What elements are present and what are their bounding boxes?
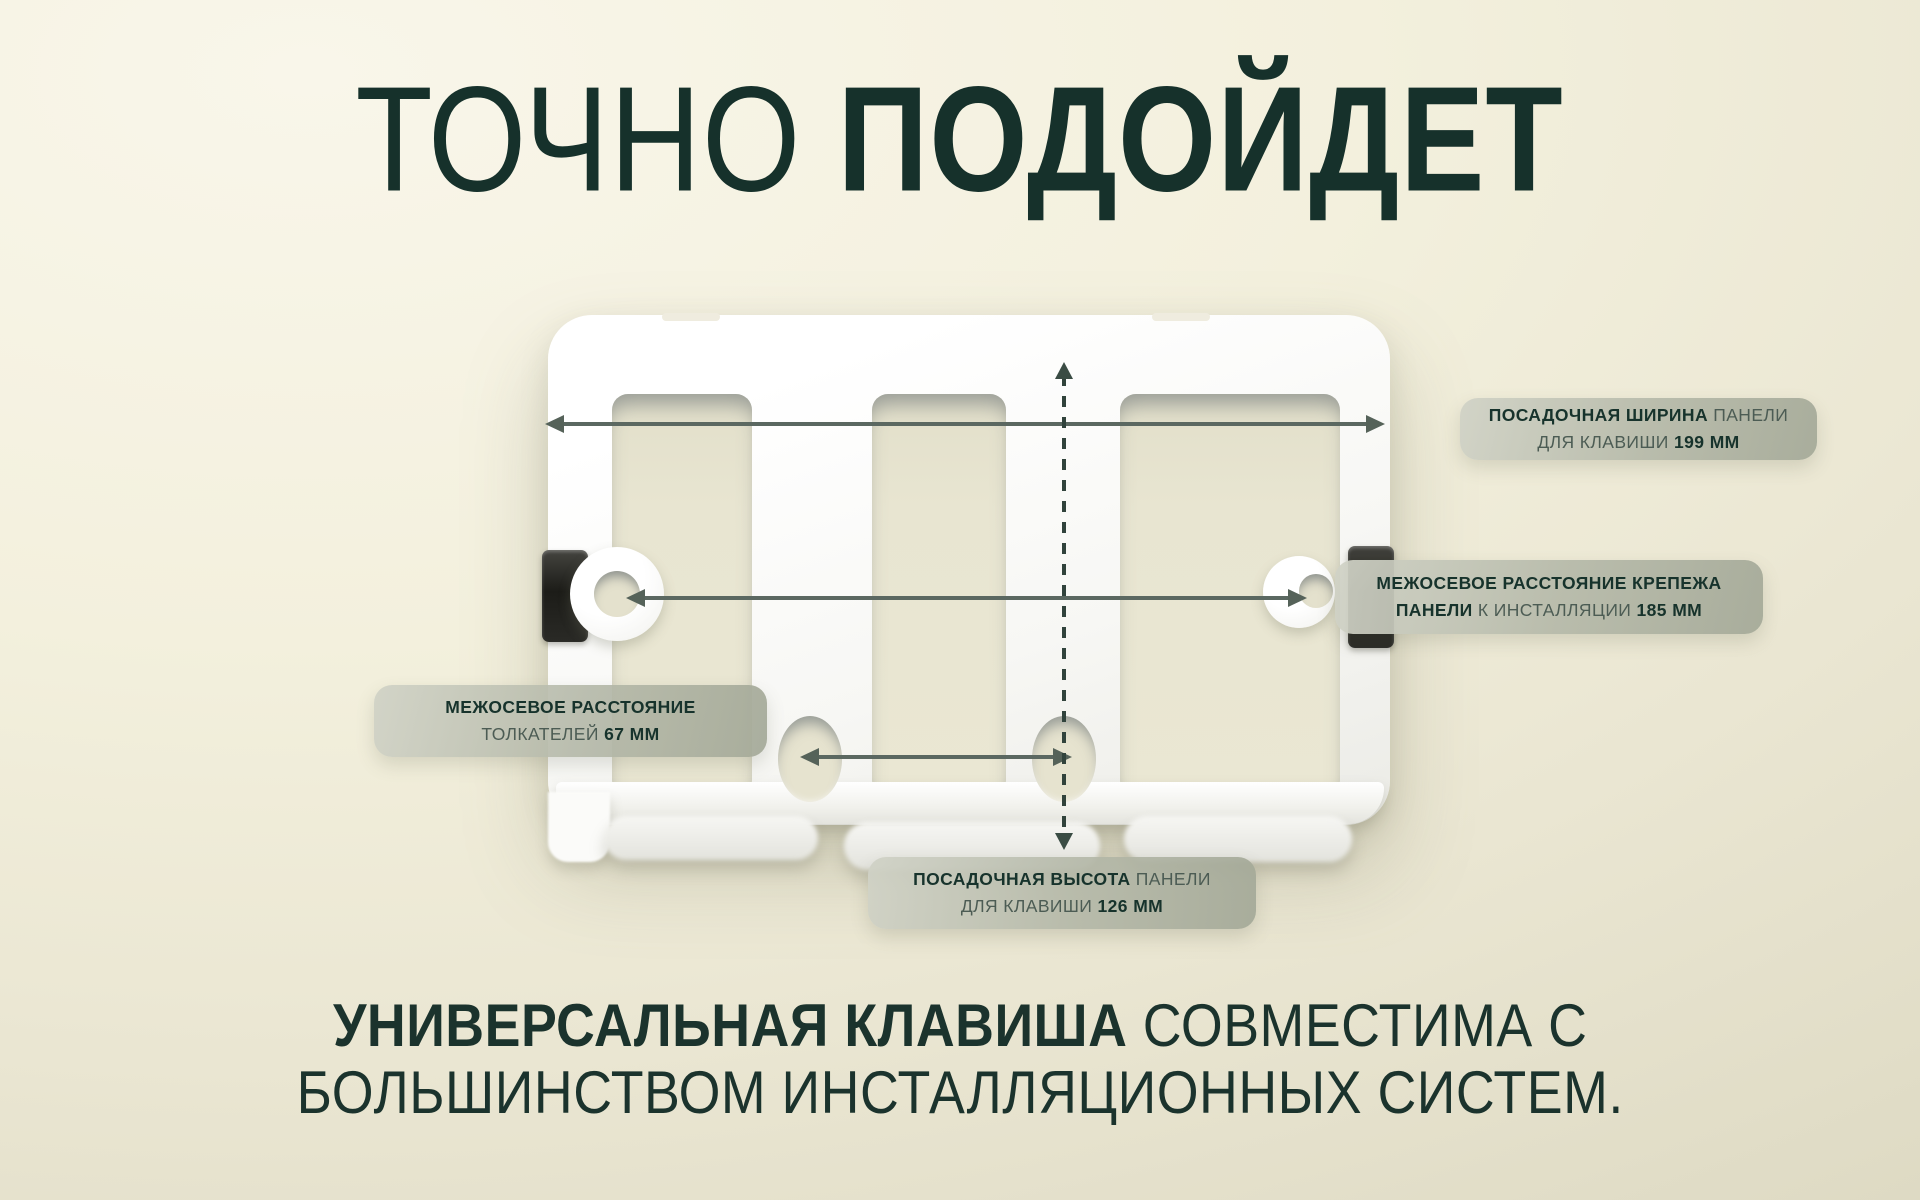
callout-seat-height-line1-reg: ПАНЕЛИ <box>1131 869 1211 889</box>
callout-seat-height: ПОСАДОЧНАЯ ВЫСОТА ПАНЕЛИ ДЛЯ КЛАВИШИ 126… <box>868 857 1256 929</box>
footer-tagline: УНИВЕРСАЛЬНАЯ КЛАВИША СОВМЕСТИМА С БОЛЬШ… <box>0 992 1920 1116</box>
callout-seat-height-line2-reg: ДЛЯ КЛАВИШИ <box>961 896 1098 916</box>
width-arrow-line <box>559 422 1371 426</box>
height-arrowhead-bottom-icon <box>1055 833 1073 850</box>
fixing-arrowhead-right-icon <box>1288 589 1307 607</box>
footer-line1-reg: СОВМЕСТИМА С <box>1127 991 1587 1059</box>
fixing-arrow-line <box>640 596 1293 600</box>
callout-seat-width-term: ПОСАДОЧНАЯ ШИРИНА <box>1489 405 1708 425</box>
height-dimension-arrow-dashed <box>1054 362 1074 850</box>
frame-left-foot <box>548 792 610 862</box>
callout-fixing-line2-reg: К ИНСТАЛЛЯЦИИ <box>1473 600 1637 620</box>
footer-line2: БОЛЬШИНСТВОМ ИНСТАЛЛЯЦИОННЫХ СИСТЕМ. <box>296 1059 1623 1126</box>
pushers-dimension-arrow <box>800 748 1072 766</box>
pushers-arrow-line <box>814 755 1058 759</box>
frame-bottom-clip-right <box>1124 816 1352 862</box>
callout-seat-width-line2-reg: ДЛЯ КЛАВИШИ <box>1537 432 1674 452</box>
page-title-bold-part <box>802 55 838 222</box>
callout-fixing-distance: МЕЖОСЕВОЕ РАССТОЯНИЕ КРЕПЕЖА ПАНЕЛИ К ИН… <box>1335 560 1763 634</box>
page-title: ТОЧНО ПОДОЙДЕТ <box>0 64 1920 200</box>
frame-bottom-clip-left <box>604 816 818 860</box>
callout-pushers-distance: МЕЖОСЕВОЕ РАССТОЯНИЕ ТОЛКАТЕЛЕЙ 67 ММ <box>374 685 767 757</box>
callout-fixing-term2: ПАНЕЛИ <box>1396 600 1473 620</box>
infographic-canvas: ТОЧНО ПОДОЙДЕТ ПОСАДОЧНАЯ ШИРИНА ПАНЕ <box>0 0 1920 1200</box>
callout-seat-height-line2: ДЛЯ КЛАВИШИ 126 ММ <box>868 893 1256 920</box>
footer-line1-bold: УНИВЕРСАЛЬНАЯ КЛАВИША <box>333 991 1127 1059</box>
page-title-text: ТОЧНО ПОДОЙДЕТ <box>356 64 1564 214</box>
width-dimension-arrow <box>545 415 1385 433</box>
callout-fixing-value: 185 ММ <box>1637 600 1703 620</box>
callout-seat-width-value: 199 ММ <box>1674 432 1740 452</box>
callout-seat-width-line1: ПОСАДОЧНАЯ ШИРИНА ПАНЕЛИ <box>1460 402 1817 429</box>
width-arrowhead-left-icon <box>545 415 564 433</box>
callout-seat-height-line1: ПОСАДОЧНАЯ ВЫСОТА ПАНЕЛИ <box>868 866 1256 893</box>
callout-seat-width-line2: ДЛЯ КЛАВИШИ 199 ММ <box>1460 429 1817 456</box>
callout-fixing-line1: МЕЖОСЕВОЕ РАССТОЯНИЕ КРЕПЕЖА <box>1335 570 1763 597</box>
callout-fixing-term: МЕЖОСЕВОЕ РАССТОЯНИЕ КРЕПЕЖА <box>1376 573 1721 593</box>
pushers-arrowhead-left-icon <box>800 748 819 766</box>
height-arrowhead-top-icon <box>1055 362 1073 379</box>
width-arrowhead-right-icon <box>1366 415 1385 433</box>
height-arrow-dashed-line <box>1062 375 1066 837</box>
footer-tagline-text: УНИВЕРСАЛЬНАЯ КЛАВИША СОВМЕСТИМА С БОЛЬШ… <box>296 992 1623 1126</box>
callout-seat-width: ПОСАДОЧНАЯ ШИРИНА ПАНЕЛИ ДЛЯ КЛАВИШИ 199… <box>1460 398 1817 460</box>
frame-top-notch-right <box>1152 313 1210 321</box>
page-title-bold-word: ПОДОЙДЕТ <box>838 55 1564 222</box>
callout-pushers-line2: ТОЛКАТЕЛЕЙ 67 ММ <box>374 721 767 748</box>
callout-pushers-line2-reg: ТОЛКАТЕЛЕЙ <box>481 724 604 744</box>
callout-seat-height-term: ПОСАДОЧНАЯ ВЫСОТА <box>913 869 1130 889</box>
callout-fixing-line2: ПАНЕЛИ К ИНСТАЛЛЯЦИИ 185 ММ <box>1335 597 1763 624</box>
fixing-dimension-arrow <box>626 589 1307 607</box>
callout-pushers-line1: МЕЖОСЕВОЕ РАССТОЯНИЕ <box>374 694 767 721</box>
callout-pushers-term: МЕЖОСЕВОЕ РАССТОЯНИЕ <box>445 697 695 717</box>
footer-line1: УНИВЕРСАЛЬНАЯ КЛАВИША СОВМЕСТИМА С <box>296 992 1623 1059</box>
callout-seat-width-line1-reg: ПАНЕЛИ <box>1708 405 1788 425</box>
callout-pushers-value: 67 ММ <box>604 724 659 744</box>
callout-seat-height-value: 126 ММ <box>1098 896 1164 916</box>
frame-top-notch-left <box>662 313 720 321</box>
page-title-light-part: ТОЧНО <box>356 55 802 222</box>
fixing-arrowhead-left-icon <box>626 589 645 607</box>
